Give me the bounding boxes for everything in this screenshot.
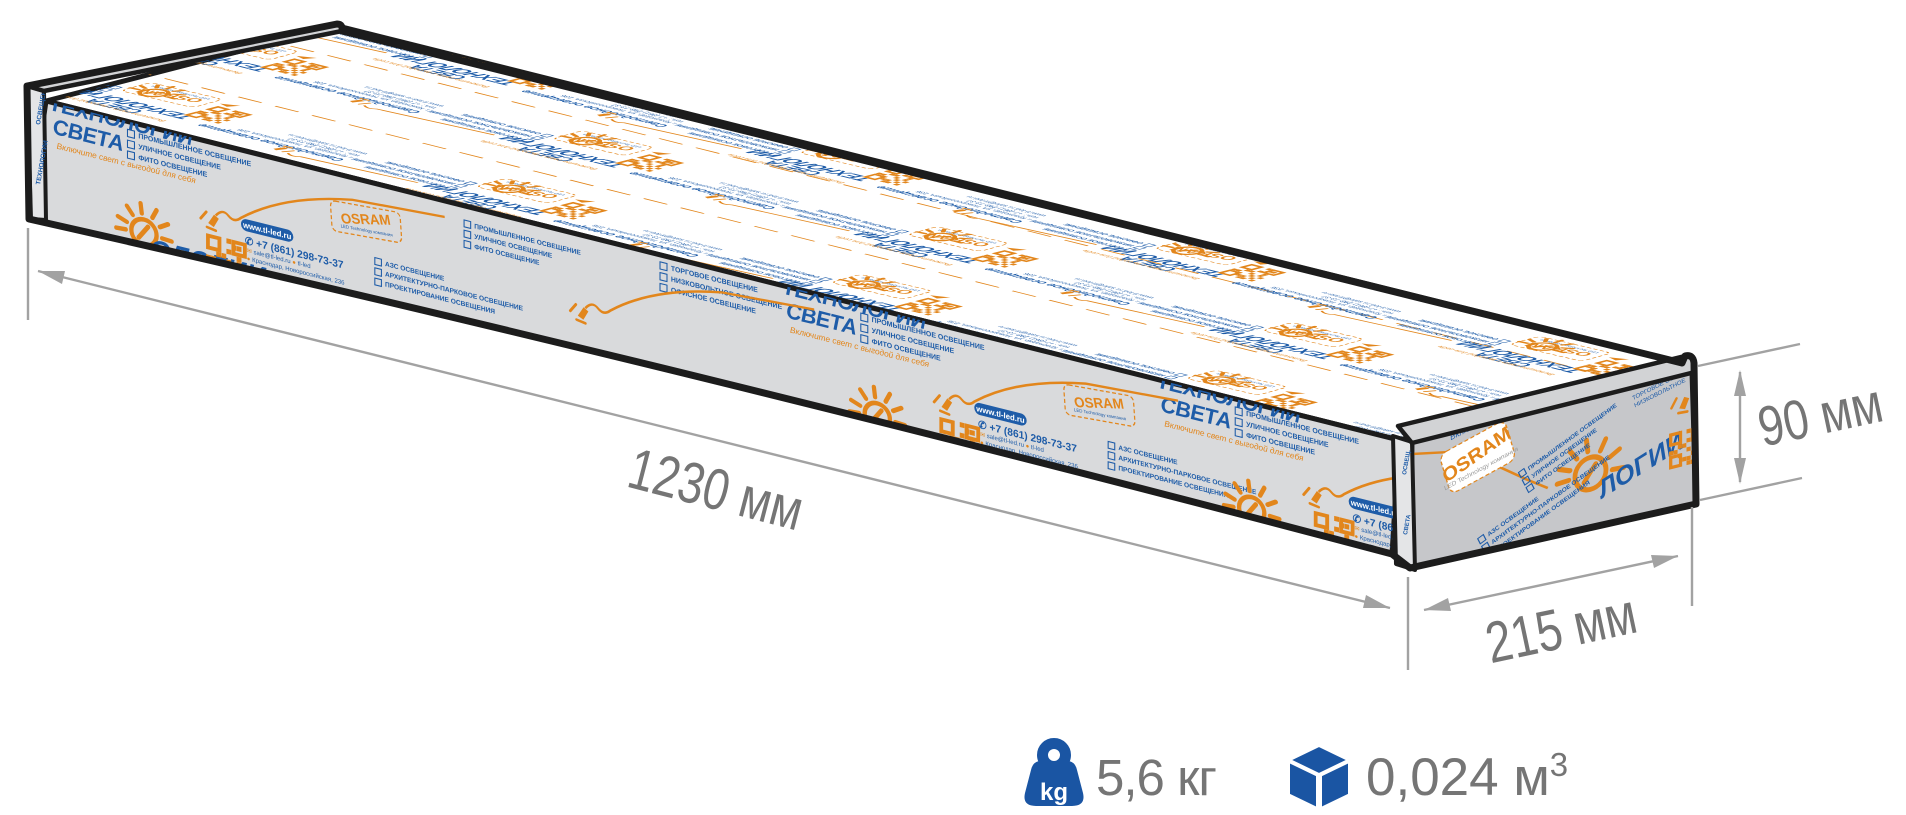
svg-text:0,024 м3: 0,024 м3: [1366, 746, 1568, 807]
svg-text:5,6 кг: 5,6 кг: [1096, 749, 1216, 806]
svg-text:kg: kg: [1040, 779, 1068, 806]
